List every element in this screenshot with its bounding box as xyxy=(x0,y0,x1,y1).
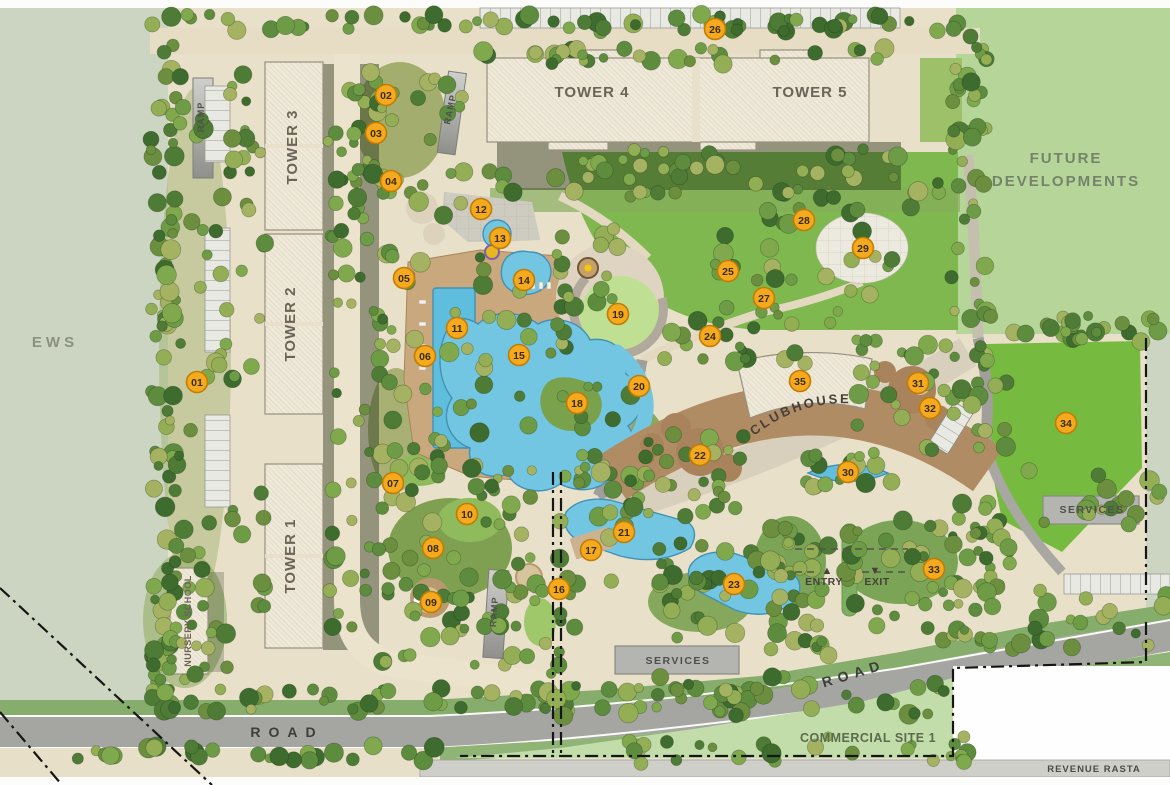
svg-text:11: 11 xyxy=(451,323,462,335)
marker-07: 07 xyxy=(383,473,404,494)
svg-text:03: 03 xyxy=(370,128,382,140)
svg-text:30: 30 xyxy=(842,467,854,479)
svg-text:25: 25 xyxy=(722,266,734,278)
label-revenue-rasta: REVENUE RASTA xyxy=(1047,764,1141,775)
label-tower-5: TOWER 5 xyxy=(772,84,847,101)
marker-28: 28 xyxy=(794,210,815,231)
svg-text:28: 28 xyxy=(798,215,810,227)
svg-text:29: 29 xyxy=(857,243,869,255)
label-ramp-west: RAMP xyxy=(196,102,206,133)
label-tower-3: TOWER 3 xyxy=(284,109,301,184)
marker-05: 05 xyxy=(394,268,415,289)
label-tower-4: TOWER 4 xyxy=(554,84,629,101)
marker-17: 17 xyxy=(581,540,602,561)
marker-24: 24 xyxy=(700,326,721,347)
svg-text:27: 27 xyxy=(758,293,770,305)
svg-text:26: 26 xyxy=(709,24,721,36)
marker-12: 12 xyxy=(471,199,492,220)
svg-text:14: 14 xyxy=(518,275,530,287)
marker-21: 21 xyxy=(614,522,635,543)
label-tower-2: TOWER 2 xyxy=(282,286,299,361)
svg-text:04: 04 xyxy=(385,176,397,188)
label-services-east: SERVICES xyxy=(1060,504,1125,516)
site-plan-svg: 0102030405060708091011121314151617181920… xyxy=(0,0,1170,785)
svg-text:24: 24 xyxy=(704,331,716,343)
svg-text:05: 05 xyxy=(398,273,410,285)
marker-14: 14 xyxy=(514,270,535,291)
marker-15: 15 xyxy=(509,345,530,366)
svg-text:23: 23 xyxy=(728,579,740,591)
svg-text:17: 17 xyxy=(585,545,597,557)
marker-22: 22 xyxy=(690,445,711,466)
label-entry: ENTRY xyxy=(805,576,843,588)
marker-23: 23 xyxy=(724,574,745,595)
svg-text:15: 15 xyxy=(513,350,525,362)
marker-10: 10 xyxy=(457,504,478,525)
marker-33: 33 xyxy=(924,559,945,580)
svg-text:34: 34 xyxy=(1060,418,1072,430)
svg-text:07: 07 xyxy=(387,478,399,490)
marker-25: 25 xyxy=(718,261,739,282)
svg-text:32: 32 xyxy=(924,403,936,415)
marker-04: 04 xyxy=(381,171,402,192)
label-exit: EXIT xyxy=(864,576,889,588)
marker-34: 34 xyxy=(1056,413,1077,434)
ews-area xyxy=(0,8,168,708)
svg-text:22: 22 xyxy=(694,450,706,462)
marker-18: 18 xyxy=(567,393,588,414)
label-future-developments-1: FUTURE xyxy=(1030,150,1103,167)
svg-text:06: 06 xyxy=(419,351,431,363)
marker-16: 16 xyxy=(549,579,570,600)
svg-text:20: 20 xyxy=(633,381,645,393)
label-entry-arrow: ▲ xyxy=(822,565,833,577)
parking-west-2 xyxy=(205,228,230,352)
parking-west-3 xyxy=(205,415,230,507)
svg-text:16: 16 xyxy=(553,584,565,596)
svg-text:01: 01 xyxy=(191,377,203,389)
svg-text:31: 31 xyxy=(912,378,924,390)
marker-03: 03 xyxy=(366,123,387,144)
label-nursery-school: NURSERY SCHOOL xyxy=(183,575,193,667)
label-road-south: ROAD xyxy=(250,724,323,740)
marker-20: 20 xyxy=(629,376,650,397)
label-commercial-site-1: COMMERCIAL SITE 1 xyxy=(800,731,936,745)
marker-01: 01 xyxy=(187,372,208,393)
marker-27: 27 xyxy=(754,288,775,309)
svg-text:19: 19 xyxy=(612,309,624,321)
label-services-south: SERVICES xyxy=(646,655,711,667)
svg-text:35: 35 xyxy=(794,376,806,388)
svg-text:09: 09 xyxy=(425,597,437,609)
label-future-developments-2: DEVELOPMENTS xyxy=(992,173,1140,190)
marker-35: 35 xyxy=(790,371,811,392)
marker-26: 26 xyxy=(705,19,726,40)
marker-29: 29 xyxy=(853,238,874,259)
svg-text:13: 13 xyxy=(494,233,506,245)
marker-30: 30 xyxy=(838,462,859,483)
svg-text:10: 10 xyxy=(461,509,473,521)
svg-text:33: 33 xyxy=(928,564,940,576)
marker-32: 32 xyxy=(920,398,941,419)
label-tower-1: TOWER 1 xyxy=(282,518,299,593)
marker-31: 31 xyxy=(908,373,929,394)
label-exit-arrow: ▼ xyxy=(870,565,881,577)
marker-13: 13 xyxy=(490,228,511,249)
label-ews: EWS xyxy=(32,334,78,351)
marker-11: 11 xyxy=(447,318,468,339)
svg-text:02: 02 xyxy=(380,90,392,102)
site-plan-page: 0102030405060708091011121314151617181920… xyxy=(0,0,1170,785)
svg-text:12: 12 xyxy=(475,204,487,216)
label-ramp-south: RAMP xyxy=(488,596,500,627)
marker-08: 08 xyxy=(423,538,444,559)
svg-text:08: 08 xyxy=(427,543,439,555)
marker-02: 02 xyxy=(376,85,397,106)
svg-text:21: 21 xyxy=(618,527,630,539)
svg-text:18: 18 xyxy=(571,398,583,410)
marker-19: 19 xyxy=(608,304,629,325)
marker-09: 09 xyxy=(421,592,442,613)
parking-east xyxy=(1064,574,1170,594)
marker-06: 06 xyxy=(415,346,436,367)
